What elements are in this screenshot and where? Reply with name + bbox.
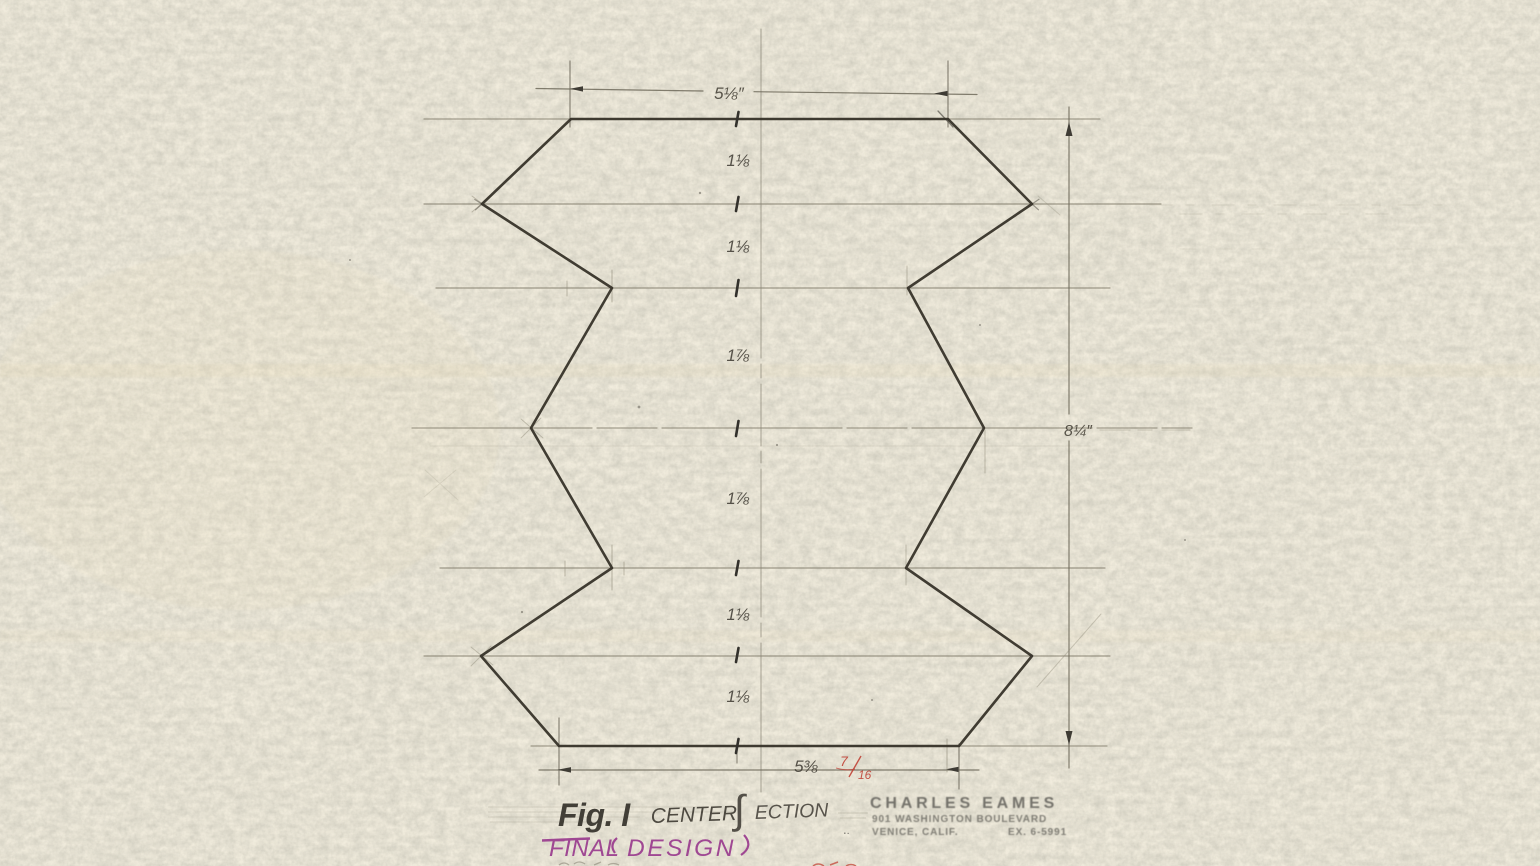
svg-text:16: 16 [858,768,872,782]
svg-text:․.: ․. [843,825,850,837]
svg-text:CENTER: CENTER [650,802,737,828]
svg-text:1⅛: 1⅛ [727,152,750,170]
svg-text:DESIGN: DESIGN [627,835,736,862]
svg-text:1⅞: 1⅞ [727,347,750,365]
svg-text:7: 7 [840,753,849,769]
svg-text:CHARLES EAMES: CHARLES EAMES [870,795,1058,812]
svg-text:Fig. I: Fig. I [558,797,631,833]
svg-text:ECTION: ECTION [754,799,829,824]
svg-text:5⅜: 5⅜ [794,757,818,776]
svg-text:1⅛: 1⅛ [727,238,750,256]
svg-text:EX. 6-5991: EX. 6-5991 [1008,827,1067,838]
svg-text:8¼″: 8¼″ [1064,423,1093,440]
svg-text:1⅛: 1⅛ [727,606,750,624]
svg-text:VENICE, CALIF.: VENICE, CALIF. [872,827,959,838]
svg-text:901 WASHINGTON BOULEVARD: 901 WASHINGTON BOULEVARD [872,814,1047,825]
svg-text:5⅛″: 5⅛″ [714,84,745,103]
svg-text:1⅛: 1⅛ [727,688,750,706]
svg-text:1⅞: 1⅞ [727,490,750,508]
svg-text:FINAL: FINAL [549,835,620,862]
